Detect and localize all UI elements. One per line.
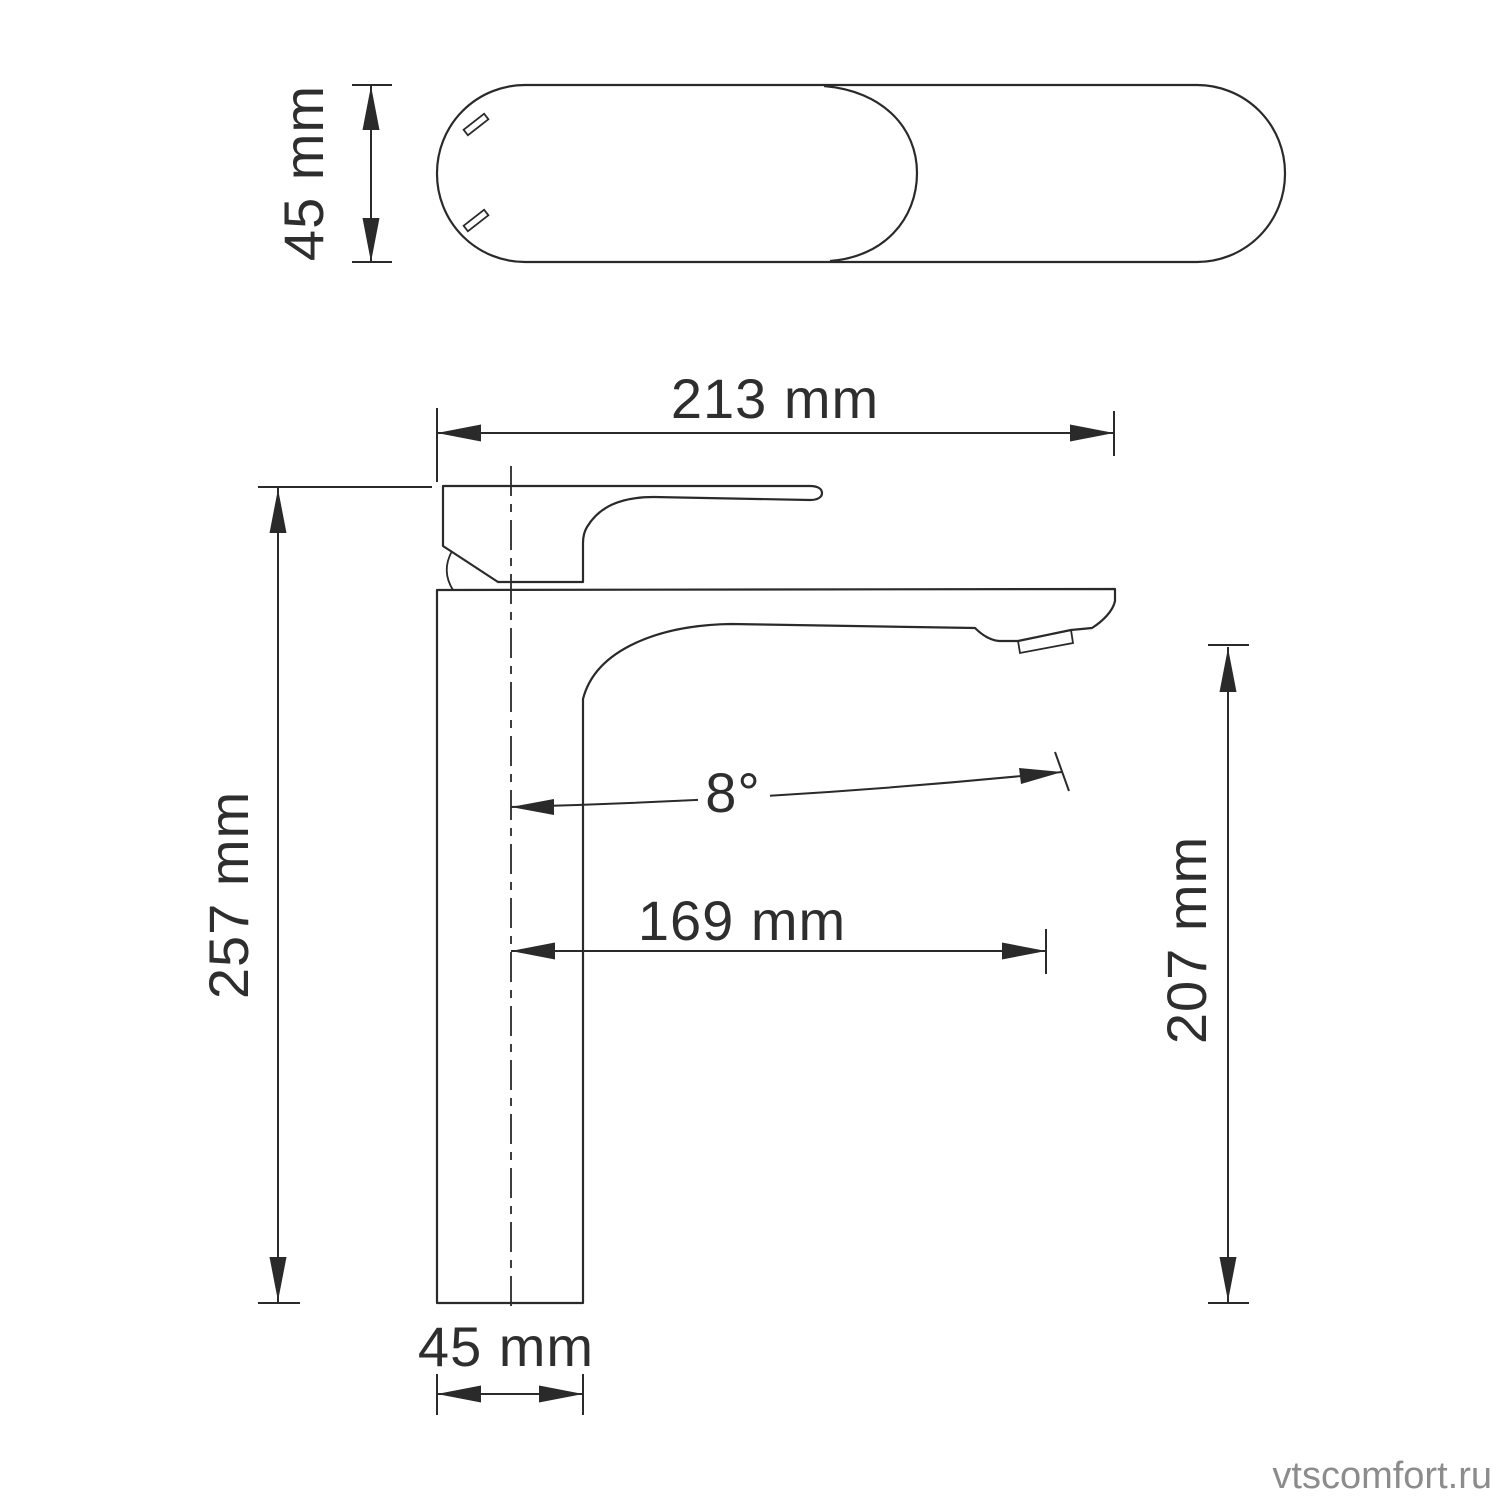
dim-label-overall-length: 213 mm	[671, 367, 879, 430]
arrow-left-icon	[437, 1386, 481, 1403]
top-view	[437, 85, 1285, 262]
arrow-down-icon	[1220, 1257, 1237, 1301]
dim-top-view-height: 45 mm	[272, 85, 392, 262]
dim-label-spout-outlet-height: 207 mm	[1155, 836, 1218, 1044]
arrow-up-icon	[270, 489, 287, 533]
arrow-right-icon	[1019, 768, 1062, 784]
arrow-down-icon	[363, 218, 380, 262]
dim-overall-length: 213 mm	[437, 367, 1114, 482]
side-view-base-arc	[447, 551, 453, 590]
arrow-right-icon	[1002, 943, 1046, 960]
dim-spout-angle: 8°	[511, 752, 1069, 824]
dim-spout-outlet-height: 207 mm	[1155, 645, 1249, 1303]
arrow-right-icon	[1070, 425, 1114, 442]
technical-drawing: 45 mm 213 mm 257 mm 8°	[0, 0, 1500, 1500]
arrow-right-icon	[539, 1386, 583, 1403]
arrow-up-icon	[1220, 648, 1237, 692]
side-view-aerator	[1018, 630, 1073, 653]
top-view-slot	[464, 114, 489, 136]
top-view-slot	[464, 210, 489, 232]
arrow-left-icon	[511, 943, 555, 960]
dim-label-top-view-height: 45 mm	[272, 85, 335, 261]
dim-overall-height: 257 mm	[197, 487, 432, 1303]
dim-base-width: 45 mm	[418, 1315, 594, 1415]
top-view-handle-arc	[824, 86, 917, 261]
dim-label-spout-angle: 8°	[705, 761, 761, 824]
dim-label-base-width: 45 mm	[418, 1315, 594, 1378]
dim-spout-reach: 169 mm	[511, 889, 1046, 974]
arrow-left-icon	[437, 425, 481, 442]
dim-label-spout-reach: 169 mm	[638, 889, 846, 952]
arrow-up-icon	[363, 86, 380, 130]
faucet-dimension-drawing: 45 mm 213 mm 257 mm 8°	[0, 0, 1500, 1500]
arrow-left-icon	[511, 799, 554, 815]
top-view-body-outline	[437, 85, 1285, 262]
arrow-down-icon	[270, 1257, 287, 1301]
dim-label-overall-height: 257 mm	[197, 791, 260, 999]
watermark: vtscomfort.ru	[1272, 1455, 1492, 1497]
side-view	[437, 466, 1115, 1310]
side-view-handle	[443, 486, 822, 582]
